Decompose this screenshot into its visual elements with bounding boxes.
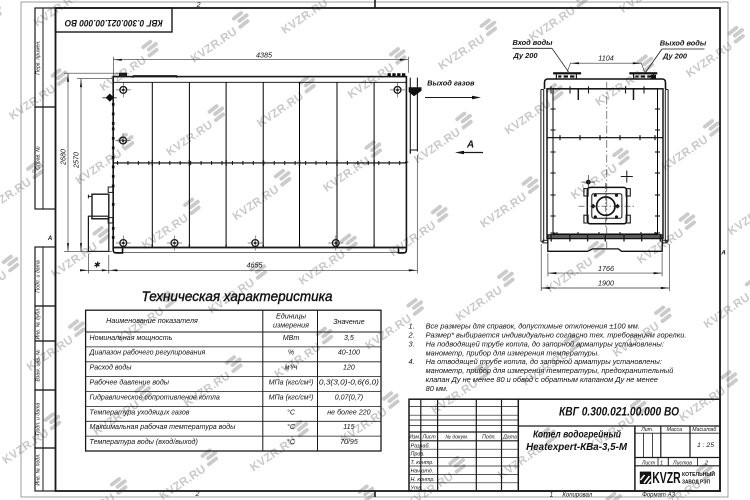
- svg-text:Лист: Лист: [421, 435, 436, 441]
- svg-text:не более 220: не более 220: [327, 408, 370, 416]
- svg-text:Листов: Листов: [672, 460, 692, 466]
- svg-text:Взам. инв. №: Взам. инв. №: [36, 349, 42, 381]
- svg-text:А: А: [466, 140, 474, 151]
- svg-text:КОТЕЛЬНЫЙ: КОТЕЛЬНЫЙ: [682, 470, 715, 478]
- svg-text:Дата: Дата: [502, 435, 517, 441]
- svg-text:3.: 3.: [409, 339, 415, 348]
- svg-text:1104: 1104: [598, 54, 613, 63]
- svg-text:2.: 2.: [408, 331, 415, 340]
- svg-text:А: А: [47, 236, 52, 242]
- svg-text:Температура уходящих газов: Температура уходящих газов: [90, 408, 190, 416]
- svg-text:1.: 1.: [409, 322, 415, 331]
- svg-text:Масса: Масса: [667, 427, 682, 433]
- svg-text:Утв.: Утв.: [410, 485, 423, 491]
- svg-text:1: 1: [660, 460, 663, 466]
- svg-text:Подп. и дата: Подп. и дата: [36, 403, 42, 436]
- svg-text:Масштаб: Масштаб: [692, 427, 717, 433]
- svg-text:Разраб.: Разраб.: [411, 443, 431, 449]
- svg-text:Справ. №: Справ. №: [36, 146, 42, 170]
- svg-text:Диапазон рабочего регулировани: Диапазон рабочего регулирования: [89, 349, 206, 357]
- svg-text:Единицы: Единицы: [276, 312, 307, 321]
- svg-text:Пров.: Пров.: [411, 452, 425, 458]
- svg-text:Формат А3: Формат А3: [642, 493, 675, 499]
- svg-text:клапан Ду не менее 80 и обвод: клапан Ду не менее 80 и обвод с обратным…: [426, 375, 658, 384]
- svg-text:Гидравлическое сопротивление к: Гидравлическое сопротивление котла: [90, 393, 220, 401]
- svg-text:Перв. примен.: Перв. примен.: [36, 40, 42, 74]
- svg-text:измерения: измерения: [273, 321, 309, 330]
- svg-text:2570: 2570: [72, 152, 81, 169]
- svg-text:1766: 1766: [598, 264, 614, 273]
- svg-text:40-100: 40-100: [338, 349, 360, 357]
- svg-text:0,3(3,0)-0,6(6,0): 0,3(3,0)-0,6(6,0): [319, 379, 379, 387]
- svg-text:Нач.отд.: Нач.отд.: [411, 469, 434, 475]
- svg-text:Лист: Лист: [641, 460, 656, 466]
- svg-text:На отводящей трубе котла, до з: На отводящей трубе котла, до запорной ар…: [426, 357, 662, 366]
- svg-text:2: 2: [196, 2, 201, 9]
- svg-text:Т. контр.: Т. контр.: [411, 460, 434, 466]
- svg-text:1 : 25: 1 : 25: [697, 442, 714, 449]
- svg-text:Рабочее давление воды: Рабочее давление воды: [90, 379, 170, 387]
- svg-text:Выход воды: Выход воды: [660, 39, 707, 48]
- svg-text:На подводящей трубе котла, до: На подводящей трубе котла, до запорной а…: [426, 339, 664, 348]
- svg-text:70/95: 70/95: [340, 438, 358, 446]
- svg-text:°С: °С: [287, 423, 296, 431]
- svg-text:3,5: 3,5: [344, 334, 354, 342]
- svg-text:Ду 200: Ду 200: [662, 52, 688, 61]
- svg-text:Подп. и дата: Подп. и дата: [36, 260, 42, 293]
- svg-text:Температура воды (вход/выход): Температура воды (вход/выход): [90, 438, 198, 446]
- svg-text:А: А: [720, 251, 725, 257]
- svg-text:манометр, прибор для измерения: манометр, прибор для измерения температу…: [426, 348, 600, 357]
- svg-text:манометр, прибор для измерения: манометр, прибор для измерения температу…: [426, 366, 674, 375]
- svg-text:4.: 4.: [409, 357, 415, 366]
- svg-text:Н. контр.: Н. контр.: [411, 477, 435, 483]
- svg-text:Вход воды: Вход воды: [513, 38, 554, 47]
- svg-text:°С: °С: [287, 438, 296, 446]
- svg-text:Номинальная мощность: Номинальная мощность: [90, 334, 173, 342]
- svg-text:0,07(0,7): 0,07(0,7): [335, 393, 363, 401]
- svg-text:80 мм.: 80 мм.: [426, 384, 448, 393]
- svg-text:Котел водогрейный: Котел водогрейный: [533, 429, 622, 440]
- svg-text:Размер* выбирается индивидуаль: Размер* выбирается индивидуально согласн…: [426, 331, 687, 340]
- svg-text:Копировал: Копировал: [562, 493, 592, 499]
- svg-text:1: 1: [550, 493, 553, 499]
- svg-text:KVZR: KVZR: [652, 470, 681, 487]
- svg-text:м³/ч: м³/ч: [285, 364, 298, 372]
- svg-text:Значение: Значение: [333, 317, 365, 326]
- svg-text:Изм.: Изм.: [409, 435, 420, 441]
- svg-text:МПа (кгс/см²): МПа (кгс/см²): [269, 379, 314, 387]
- svg-text:Максимальная рабочая температу: Максимальная рабочая температура воды: [90, 423, 237, 431]
- svg-text:Ду 200: Ду 200: [512, 51, 538, 60]
- svg-text:Подп.: Подп.: [482, 435, 496, 441]
- svg-text:°С: °С: [287, 408, 296, 416]
- svg-text:КВГ 0.300.021.00.000 ВО: КВГ 0.300.021.00.000 ВО: [559, 405, 680, 419]
- svg-text:%: %: [288, 349, 294, 357]
- svg-text:ЗАВОД РЭП: ЗАВОД РЭП: [682, 479, 710, 485]
- svg-text:МПа (кгс/см²): МПа (кгс/см²): [269, 393, 314, 401]
- svg-text:Heatexpert-КВа-3,5-М: Heatexpert-КВа-3,5-М: [526, 442, 627, 453]
- svg-text:МВт: МВт: [283, 334, 300, 342]
- svg-text:Расход воды: Расход воды: [90, 364, 133, 372]
- svg-text:Лит.: Лит.: [640, 427, 653, 433]
- svg-text:120: 120: [343, 364, 355, 372]
- svg-text:Инв. № дубл.: Инв. № дубл.: [36, 308, 42, 340]
- svg-text:2680: 2680: [59, 149, 68, 166]
- svg-text:Инв. № подл.: Инв. № подл.: [36, 453, 42, 485]
- svg-text:№ докум.: № докум.: [445, 435, 468, 441]
- svg-text:Техническая характеристика: Техническая характеристика: [142, 288, 333, 304]
- svg-text:1900: 1900: [598, 278, 614, 287]
- svg-text:115: 115: [343, 423, 354, 431]
- svg-text:2: 2: [195, 491, 200, 498]
- svg-text:4385: 4385: [256, 51, 273, 60]
- svg-text:Все размеры для справок, допус: Все размеры для справок, допустимые откл…: [426, 322, 640, 331]
- svg-text:4655: 4655: [247, 260, 264, 269]
- svg-text:Выход газов: Выход газов: [427, 78, 475, 87]
- svg-text:КВГ 0.300.021.00.000 ВО: КВГ 0.300.021.00.000 ВО: [65, 18, 163, 28]
- svg-text:Наименование показателя: Наименование показателя: [106, 316, 198, 325]
